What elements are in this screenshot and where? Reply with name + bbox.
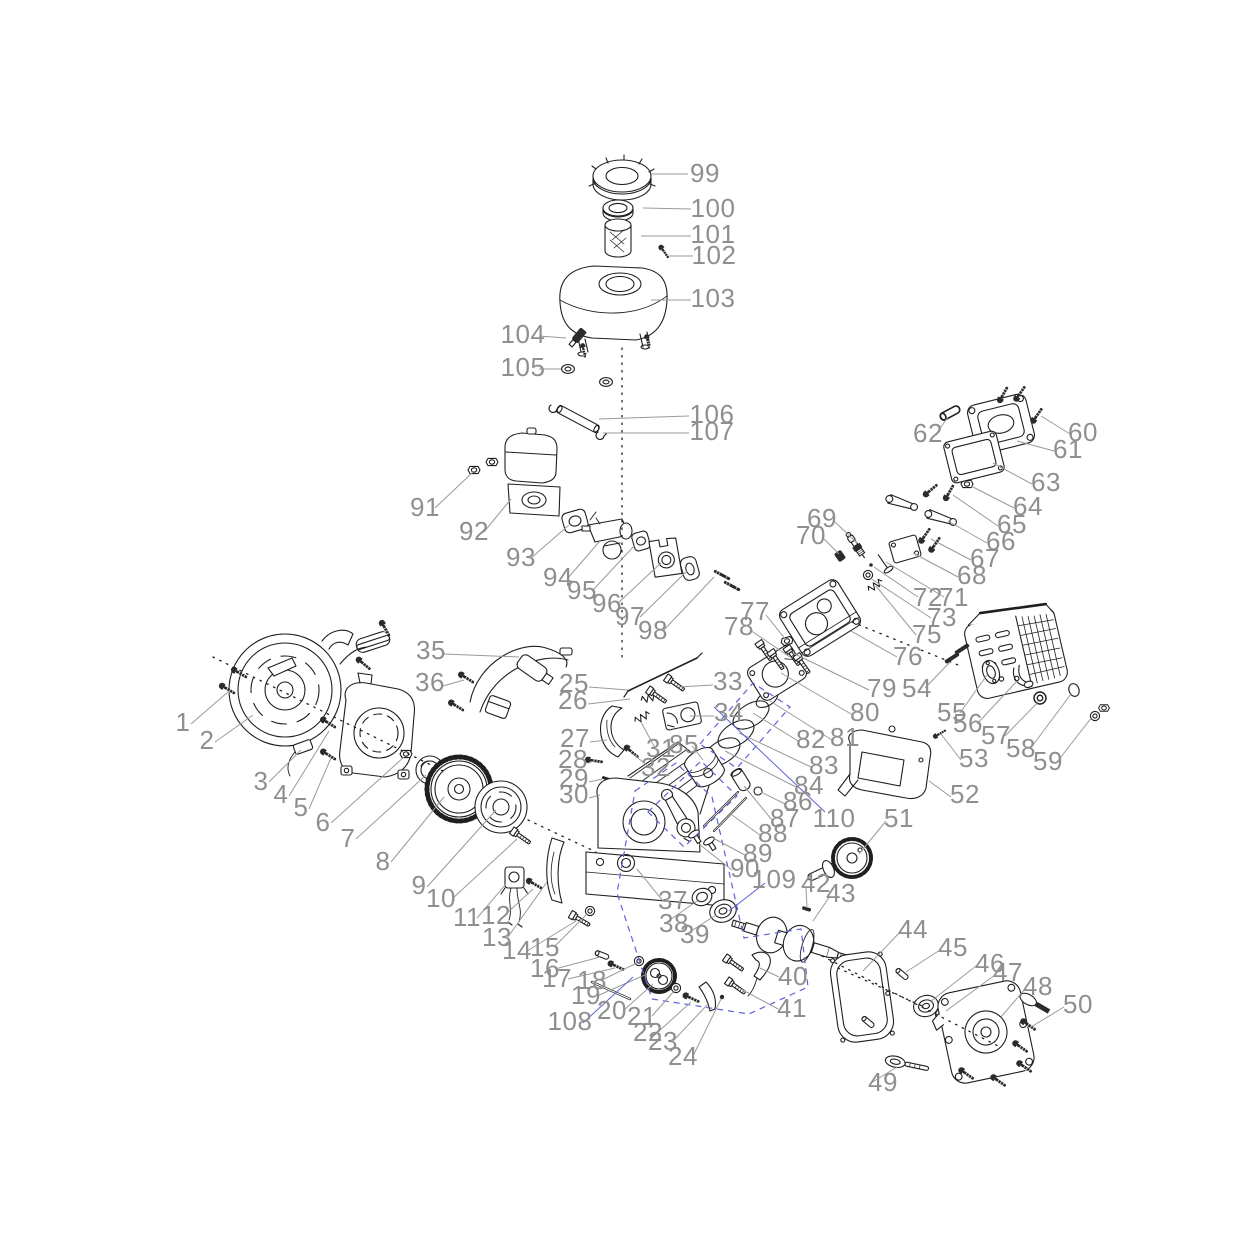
part-label-49: 49 <box>868 1067 898 1097</box>
leader-line-35 <box>444 654 519 657</box>
part-label-8: 8 <box>376 846 391 876</box>
fuel-line-drawing <box>549 405 607 440</box>
cap-gasket-drawing <box>603 200 633 221</box>
part-label-36: 36 <box>415 667 445 697</box>
leader-line-67 <box>931 539 971 560</box>
part-label-24: 24 <box>668 1041 698 1071</box>
leader-line-68 <box>913 553 958 577</box>
leader-line-3 <box>269 750 301 782</box>
exploded-parts-diagram: 1234567891011121314151617181920212223242… <box>0 0 1248 1248</box>
leader-line-65 <box>953 495 998 526</box>
leader-line-97 <box>640 571 687 617</box>
spark-plug-wire-drawing <box>447 646 572 719</box>
part-label-93: 93 <box>506 542 536 572</box>
leader-line-75 <box>876 586 916 635</box>
part-label-78: 78 <box>724 611 754 641</box>
leader-line-91 <box>435 472 473 508</box>
part-label-14: 14 <box>502 935 532 965</box>
part-label-40: 40 <box>778 961 808 991</box>
leader-line-45 <box>906 950 940 972</box>
part-label-1: 1 <box>176 707 191 737</box>
leader-line-25 <box>589 687 628 690</box>
leader-line-93 <box>531 525 569 558</box>
leader-line-63 <box>993 463 1032 484</box>
leader-line-13 <box>508 882 547 937</box>
part-label-85: 85 <box>669 729 699 759</box>
part-label-70: 70 <box>796 520 826 550</box>
part-label-92: 92 <box>459 516 489 546</box>
part-label-102: 102 <box>692 240 737 270</box>
exploded-parts-diagram-page: 1234567891011121314151617181920212223242… <box>0 0 1248 1248</box>
leader-line-41 <box>741 989 778 1009</box>
part-label-9: 9 <box>412 870 427 900</box>
leader-line-72 <box>874 567 918 597</box>
leader-line-87 <box>744 786 772 820</box>
leader-line-1 <box>191 691 229 724</box>
leader-line-82 <box>753 713 798 741</box>
leader-line-88 <box>732 815 760 835</box>
part-label-45: 45 <box>938 932 968 962</box>
leader-line-29 <box>589 779 602 782</box>
part-label-20: 20 <box>597 995 627 1025</box>
part-label-110: 110 <box>813 803 856 833</box>
leader-line-98 <box>663 577 714 631</box>
part-label-6: 6 <box>316 807 331 837</box>
part-label-103: 103 <box>691 283 736 313</box>
leader-line-60 <box>1041 416 1070 434</box>
part-label-33: 33 <box>713 666 743 696</box>
part-label-2: 2 <box>200 725 215 755</box>
part-label-50: 50 <box>1063 989 1093 1019</box>
part-label-44: 44 <box>898 914 928 944</box>
grommets-drawing <box>562 365 613 387</box>
leader-line-5 <box>309 758 331 809</box>
spark-plug-drawing <box>834 530 868 562</box>
part-label-17: 17 <box>542 963 572 993</box>
leader-line-69 <box>834 521 857 543</box>
part-label-104: 104 <box>501 319 546 349</box>
leader-line-76 <box>851 631 897 657</box>
leader-line-61 <box>1017 441 1054 451</box>
leader-line-26 <box>588 699 630 704</box>
part-label-3: 3 <box>254 766 269 796</box>
part-label-59: 59 <box>1033 746 1063 776</box>
part-label-61: 61 <box>1053 434 1083 464</box>
part-label-91: 91 <box>410 492 440 522</box>
leader-line-100 <box>643 208 691 209</box>
part-label-34: 34 <box>714 697 744 727</box>
part-label-10: 10 <box>426 883 456 913</box>
part-label-51: 51 <box>884 803 914 833</box>
part-label-76: 76 <box>893 641 923 671</box>
part-label-41: 41 <box>777 993 807 1023</box>
part-label-47: 47 <box>993 957 1023 987</box>
leader-line-51 <box>859 821 886 854</box>
part-label-32: 32 <box>641 752 671 782</box>
part-label-39: 39 <box>680 919 710 949</box>
leader-line-7 <box>356 775 426 839</box>
part-label-26: 26 <box>558 685 588 715</box>
fuel-cap-drawing <box>589 155 655 200</box>
part-label-62: 62 <box>913 418 943 448</box>
fan-cover-drawing <box>340 655 415 779</box>
leader-line-8 <box>391 797 444 862</box>
air-cleaner-drawing <box>468 428 560 516</box>
part-label-54: 54 <box>902 673 932 703</box>
part-label-35: 35 <box>416 635 446 665</box>
leader-line-80 <box>781 673 851 714</box>
part-label-5: 5 <box>294 792 309 822</box>
leader-line-96 <box>617 563 661 604</box>
part-label-99: 99 <box>690 158 720 188</box>
part-label-105: 105 <box>501 352 546 382</box>
part-label-109: 109 <box>752 864 797 894</box>
part-label-4: 4 <box>274 779 289 809</box>
part-label-56: 56 <box>953 708 983 738</box>
part-label-58: 58 <box>1006 733 1036 763</box>
part-label-98: 98 <box>638 615 668 645</box>
flywheel-group-drawing <box>400 750 532 846</box>
part-label-7: 7 <box>341 823 356 853</box>
part-label-108: 108 <box>548 1006 593 1036</box>
part-label-11: 11 <box>453 902 481 932</box>
part-label-43: 43 <box>826 878 856 908</box>
fuel-filter-drawing <box>605 219 631 257</box>
part-label-107: 107 <box>690 416 735 446</box>
leader-line-36 <box>443 680 464 686</box>
leader-line-64 <box>971 486 1014 508</box>
leader-line-52 <box>929 781 951 797</box>
leader-line-106 <box>599 416 689 419</box>
part-label-48: 48 <box>1023 971 1053 1001</box>
leader-line-66 <box>948 521 987 543</box>
leader-line-33 <box>678 685 713 687</box>
part-label-52: 52 <box>950 779 980 809</box>
part-label-81: 81 <box>830 722 860 752</box>
part-label-30: 30 <box>559 779 589 809</box>
